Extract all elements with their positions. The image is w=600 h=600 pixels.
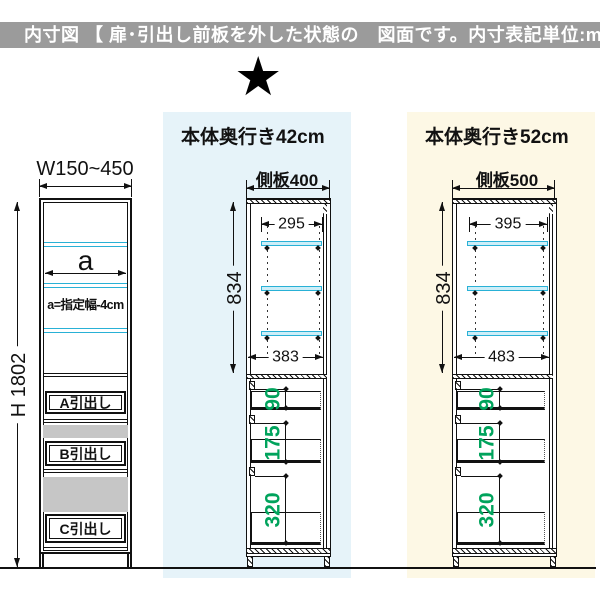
cabinet-42-diagram: 295 383 90 xyxy=(246,198,331,557)
dimension-marker xyxy=(497,473,503,479)
drawer-height-90-label: 90 xyxy=(477,387,498,410)
top-panel-hatch xyxy=(247,199,330,204)
drawer-height-320-label: 320 xyxy=(477,492,498,527)
leader-line xyxy=(255,476,285,477)
dimension-tick xyxy=(469,217,470,232)
divider-line xyxy=(43,469,128,470)
drawer-gap xyxy=(43,425,128,438)
adjustable-shelf xyxy=(467,286,548,291)
side-panel-500-arrow xyxy=(452,188,555,189)
arrow-down-icon xyxy=(14,558,20,567)
drawer-height-175-label: 175 xyxy=(263,425,284,460)
side-wall xyxy=(323,204,327,554)
drawer-gap xyxy=(43,477,128,512)
drawer-runner xyxy=(455,467,461,476)
shelf-line xyxy=(44,332,127,333)
arrow-down-icon xyxy=(230,364,236,373)
drawer-height-175-label: 175 xyxy=(477,425,498,460)
arrow-left-icon xyxy=(248,354,256,360)
top-inner-width-arrow-52: 395 xyxy=(469,224,547,225)
arrow-up-icon xyxy=(14,202,20,211)
shelf-marker xyxy=(472,290,478,296)
drawer-height-175-dimension: 175 xyxy=(285,423,286,462)
drawer-box xyxy=(457,512,545,545)
divider-line xyxy=(43,376,128,377)
dimension-tick xyxy=(246,180,247,198)
inner-height-label-42: 834 xyxy=(225,265,245,310)
arrow-right-icon xyxy=(541,354,549,360)
diagram-page: 内寸図 【 扉･引出し前板を外した状態の 図面です。内寸表記単位:mm 】 ★ … xyxy=(0,0,600,600)
adjustable-shelf xyxy=(261,286,322,291)
shelf-marker xyxy=(472,245,478,251)
base-post-hatch xyxy=(324,556,330,567)
dimension-tick xyxy=(554,180,555,198)
drawer-height-90-label: 90 xyxy=(263,387,284,410)
divider-line xyxy=(43,550,128,551)
base-post xyxy=(127,554,132,567)
leader-line xyxy=(461,423,499,424)
dimension-tick xyxy=(547,217,548,232)
shelf-width-label: a xyxy=(41,247,130,275)
base-post-hatch xyxy=(453,556,459,567)
arrow-left-icon xyxy=(246,185,254,191)
shelf-marker xyxy=(540,335,546,341)
drawer-height-90-dimension: 90 xyxy=(285,389,286,408)
inner-line xyxy=(43,202,128,203)
drawer-b-label: B引出し xyxy=(49,445,122,462)
arrow-left-icon xyxy=(45,270,53,276)
top-inner-width-label-42: 295 xyxy=(274,215,309,233)
inner-height-dimension-52: 834 xyxy=(442,202,443,373)
adjustable-shelf xyxy=(261,331,322,336)
arrow-up-icon xyxy=(230,202,236,211)
depth-52-title: 本体奥行き52cm xyxy=(425,122,569,149)
shelf-line xyxy=(44,328,127,329)
arrow-left-icon xyxy=(452,185,460,191)
adjustable-shelf xyxy=(467,241,548,246)
shelf-marker xyxy=(540,245,546,251)
star-icon: ★ xyxy=(234,50,282,104)
shelf-line xyxy=(44,287,127,288)
dimension-tick xyxy=(452,180,453,198)
height-label: H 1802 xyxy=(9,346,29,423)
arrow-down-icon xyxy=(439,364,445,373)
arrow-left-icon xyxy=(454,354,462,360)
shelf-width-note: a=指定幅-4cm xyxy=(41,294,130,313)
leader-line xyxy=(255,423,285,424)
arrow-right-icon xyxy=(315,354,323,360)
adjustable-shelf xyxy=(467,331,548,336)
bottom-inner-width-label-52: 483 xyxy=(484,348,519,366)
inner-height-label-52: 834 xyxy=(434,265,454,310)
drawer-b-front: B引出し xyxy=(45,441,126,466)
width-dimension-arrow xyxy=(39,186,132,187)
arrow-right-icon xyxy=(314,221,322,227)
bottom-inner-width-label-42: 383 xyxy=(268,348,303,366)
divider-line xyxy=(43,422,128,423)
floor-line xyxy=(0,567,596,569)
drawer-height-320-dimension: 320 xyxy=(285,476,286,543)
height-dimension-arrow: H 1802 xyxy=(17,202,18,567)
shelf-line xyxy=(44,283,127,284)
drawer-height-320-label: 320 xyxy=(263,492,284,527)
shelf-marker xyxy=(264,290,270,296)
drawer-height-175-dimension: 175 xyxy=(499,423,500,462)
shelf-marker xyxy=(264,335,270,341)
shelf-marker xyxy=(264,245,270,251)
wall-hatch xyxy=(549,204,553,214)
top-inner-width-label-52: 395 xyxy=(491,215,526,233)
shelf-width-arrow xyxy=(45,273,126,274)
dimension-tick xyxy=(261,217,262,232)
wall-hatch xyxy=(323,204,327,214)
side-wall xyxy=(549,204,553,554)
drawer-height-320-dimension: 320 xyxy=(499,476,500,543)
arrow-left-icon xyxy=(39,183,47,189)
base-post-hatch xyxy=(550,556,556,567)
width-range-label: W150~450 xyxy=(25,158,145,181)
divider-line xyxy=(43,547,128,548)
top-panel-hatch xyxy=(453,199,556,204)
header-bar: 内寸図 【 扉･引出し前板を外した状態の 図面です。内寸表記単位:mm 】 xyxy=(0,22,600,48)
drawer-height-90-dimension: 90 xyxy=(499,389,500,408)
drawer-c-label: C引出し xyxy=(49,518,122,539)
fixed-shelf-hatch xyxy=(453,374,553,379)
drawer-c-front: C引出し xyxy=(45,514,126,543)
drawer-runner xyxy=(249,467,255,476)
drawer-a-label: A引出し xyxy=(49,395,122,410)
dimension-tick xyxy=(329,180,330,198)
adjustable-shelf xyxy=(261,241,322,246)
shelf-line xyxy=(44,242,127,243)
dimension-tick xyxy=(39,179,40,197)
base-post xyxy=(39,554,44,567)
divider-line xyxy=(43,472,128,473)
cabinet-52-diagram: 395 483 90 xyxy=(452,198,557,557)
bottom-panel-hatch xyxy=(247,548,330,554)
depth-42-title: 本体奥行き42cm xyxy=(181,122,325,149)
dimension-tick xyxy=(322,217,323,232)
base-post-hatch xyxy=(247,556,253,567)
dimension-tick xyxy=(131,179,132,197)
bottom-panel-hatch xyxy=(453,548,556,554)
bottom-inner-width-arrow-42: 383 xyxy=(248,357,323,358)
bottom-inner-width-arrow-52: 483 xyxy=(454,357,549,358)
divider-line xyxy=(43,373,128,374)
left-cabinet-diagram: a a=指定幅-4cm A引出し B引出し C引出し xyxy=(39,198,132,554)
drawer-a-front: A引出し xyxy=(45,391,126,414)
header-title: 内寸図 【 扉･引出し前板を外した状態の 図面です。内寸表記単位:mm 】 xyxy=(24,25,600,45)
fixed-shelf-hatch xyxy=(247,374,327,379)
arrow-right-icon xyxy=(118,270,126,276)
shelf-marker xyxy=(472,335,478,341)
arrow-up-icon xyxy=(439,202,445,211)
shelf-marker xyxy=(540,290,546,296)
side-panel-400-arrow xyxy=(246,188,330,189)
leader-line xyxy=(461,476,499,477)
dimension-marker xyxy=(283,473,289,479)
divider-line xyxy=(43,419,128,420)
top-inner-width-arrow-42: 295 xyxy=(261,224,322,225)
inner-height-dimension-42: 834 xyxy=(233,202,234,373)
